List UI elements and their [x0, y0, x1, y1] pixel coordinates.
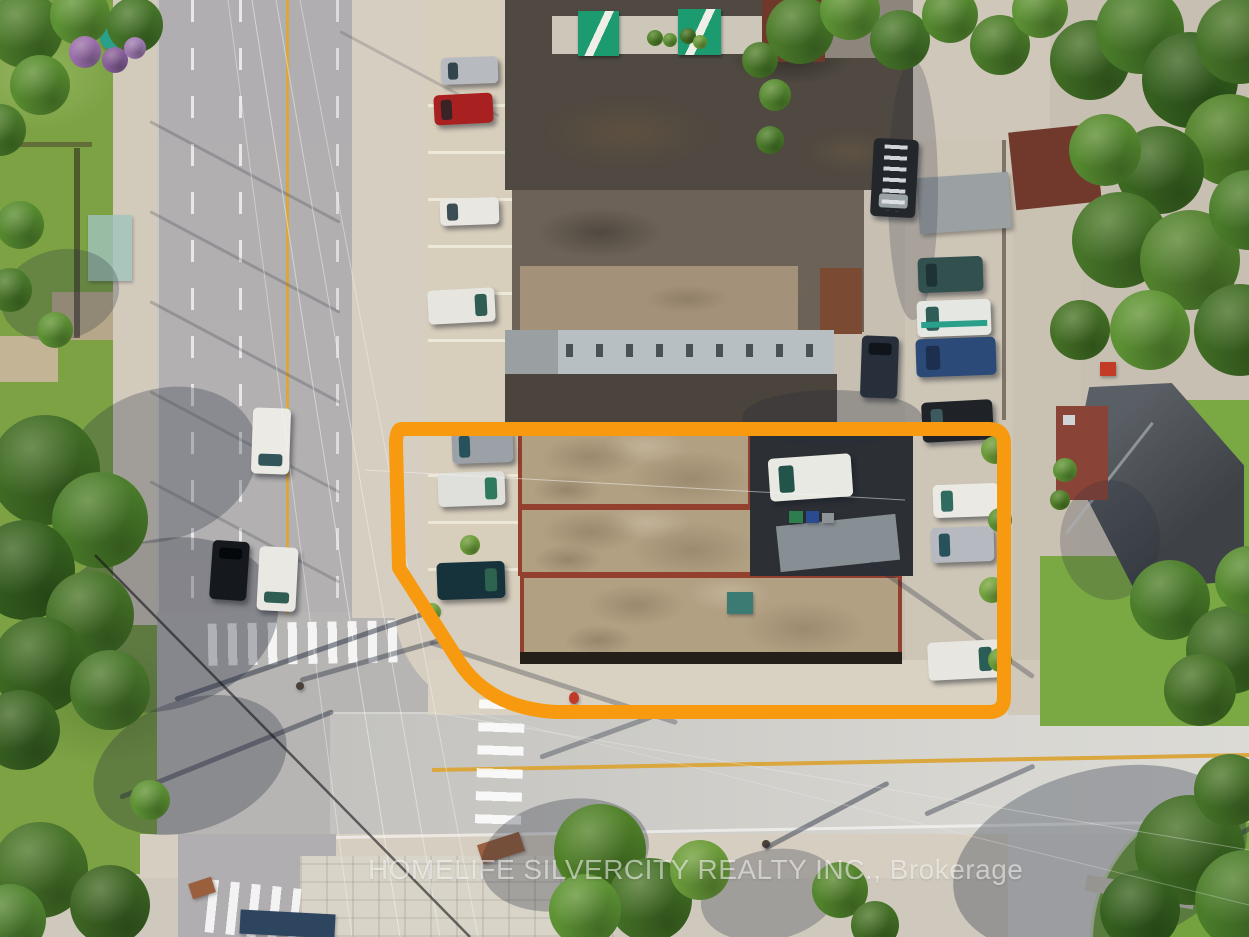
- green-metal-roof: [678, 9, 721, 55]
- tree-canopy: [1110, 290, 1190, 370]
- ladder-truck-dark-windshield: [879, 193, 908, 209]
- subject-building-roof-a: [518, 428, 752, 508]
- yard-fence: [74, 148, 80, 338]
- tree-canopy: [1184, 94, 1249, 186]
- maroon-roof: [762, 0, 825, 62]
- rear-car-darkblue-windshield: [868, 343, 892, 355]
- small-red-roof: [1008, 124, 1102, 211]
- yard-fence: [0, 142, 92, 147]
- gray-roof: [825, 0, 913, 58]
- lane-dash-line: [336, 0, 339, 614]
- gray-roof-section: [505, 330, 558, 374]
- tree-canopy: [1194, 284, 1249, 376]
- crosswalk-south: [204, 879, 301, 937]
- tree-canopy: [1140, 210, 1240, 310]
- tree-canopy: [1072, 192, 1168, 288]
- subject-building-roof-c: [520, 574, 902, 660]
- brown-shed-roof: [820, 268, 862, 334]
- tree-canopy: [1142, 32, 1238, 128]
- crosswalk-north: [208, 620, 403, 665]
- rear-yard-pavement: [905, 0, 1050, 140]
- roof-shadow-edge: [520, 652, 902, 664]
- aerial-photo-scene: HOMELIFE SILVERCITY REALTY INC., Brokera…: [0, 0, 1249, 937]
- lane-dash-line: [239, 0, 242, 614]
- rear-car-darkblue: [860, 335, 899, 398]
- east-sidewalk: [352, 0, 428, 618]
- tree-canopy: [1096, 0, 1184, 74]
- strip-building-windows: [566, 344, 826, 357]
- tree-canopy: [1196, 0, 1249, 84]
- commercial-roof-tan-upper: [520, 266, 798, 332]
- brokerage-watermark: HOMELIFE SILVERCITY REALTY INC., Brokera…: [368, 854, 1023, 886]
- gray-shed-roof: [916, 172, 1012, 234]
- ac-unit: [1063, 415, 1075, 425]
- green-metal-roof: [578, 11, 619, 56]
- tree-canopy: [1050, 20, 1130, 100]
- subject-building-roof-b: [518, 506, 754, 576]
- west-sidewalk: [113, 0, 159, 625]
- parking-stall-lines: [428, 430, 518, 615]
- lane-dash-line: [191, 0, 194, 614]
- yellow-centerline-vertical: [286, 0, 289, 614]
- tree-canopy: [1116, 126, 1204, 214]
- red-marker: [1100, 362, 1116, 376]
- garden-bed: [0, 336, 58, 382]
- crosswalk-east: [475, 699, 525, 829]
- dark-roof-strip: [505, 374, 837, 428]
- tree-canopy: [1209, 170, 1249, 250]
